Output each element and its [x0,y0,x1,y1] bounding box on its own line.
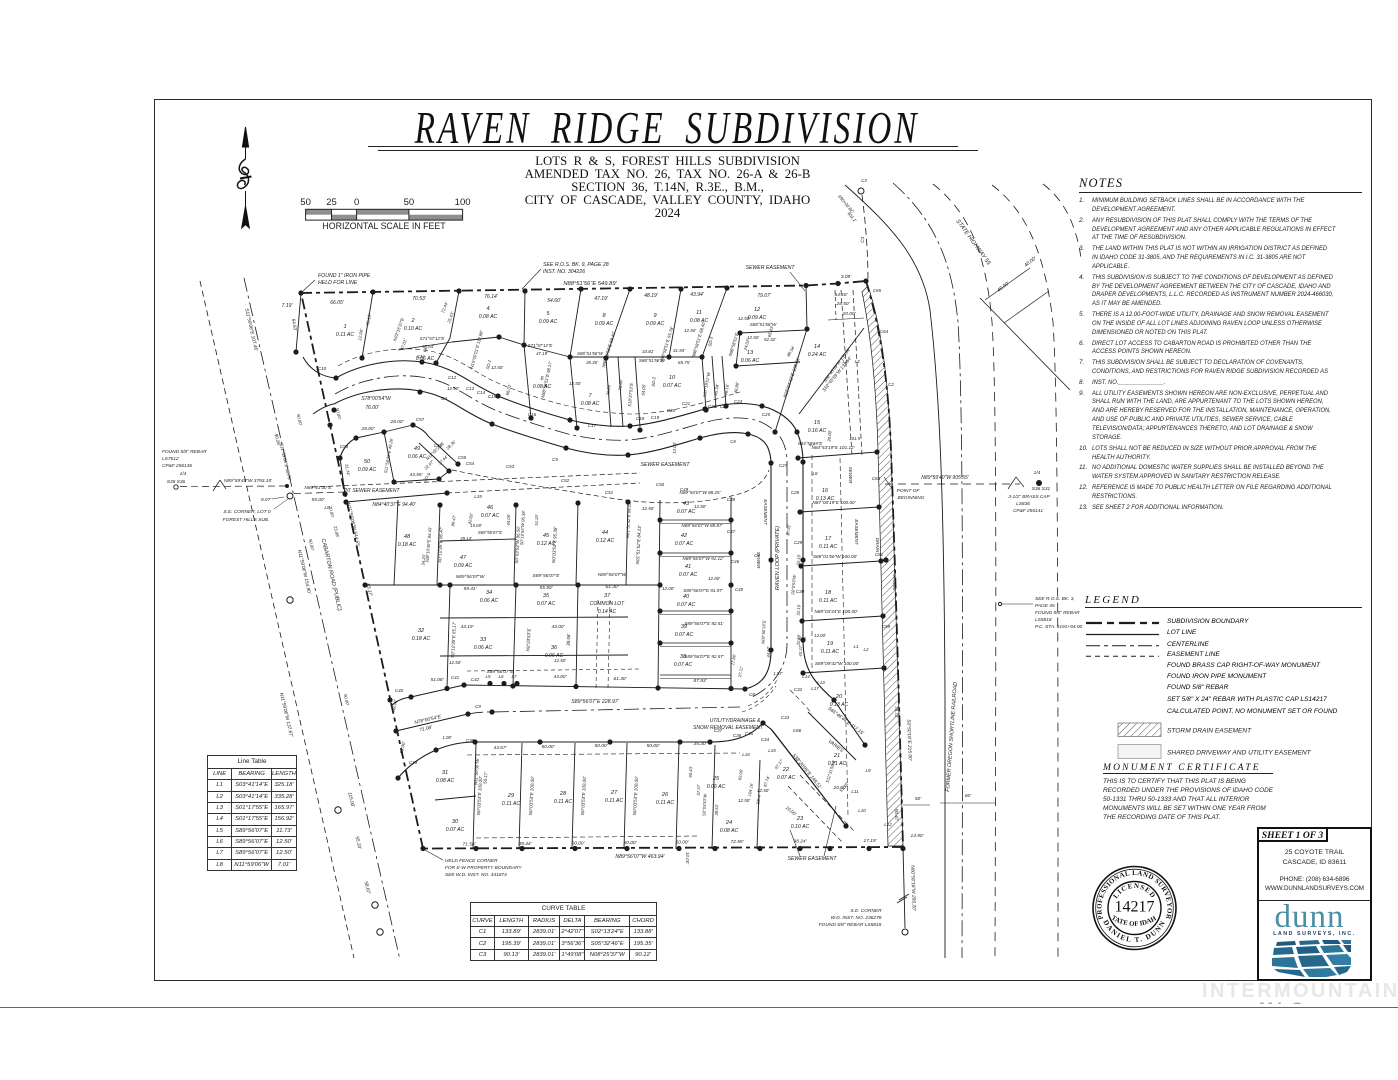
svg-text:601.1': 601.1' [846,211,858,223]
svg-text:C47: C47 [727,529,736,534]
svg-text:0.08 AC: 0.08 AC [436,778,455,784]
svg-text:98.24': 98.24' [794,839,808,845]
svg-text:RAVEN LOOP (PRIVATE): RAVEN LOOP (PRIVATE) [775,526,781,590]
svg-text:0.08 AC: 0.08 AC [720,828,739,834]
svg-text:101.5': 101.5' [849,436,861,441]
svg-text:50': 50' [915,796,922,802]
svg-text:43.67': 43.67' [494,745,508,751]
svg-text:12.50': 12.50' [447,386,459,391]
svg-text:0.18 AC: 0.18 AC [398,542,417,548]
svg-text:0.08 AC: 0.08 AC [479,314,498,320]
svg-text:60.43': 60.43' [688,766,694,778]
svg-text:49: 49 [414,446,420,452]
svg-text:L1: L1 [853,644,859,649]
svg-text:S12°31'59"E: S12°31'59"E [825,759,837,783]
svg-text:BEGINNING: BEGINNING [898,495,925,501]
svg-text:1.57': 1.57' [773,671,782,676]
svg-text:23.08': 23.08' [332,524,340,538]
svg-text:61.30': 61.30' [614,676,628,682]
svg-text:62.00': 62.00' [737,769,744,781]
svg-text:S89°56'07"E 92.51': S89°56'07"E 92.51' [684,621,724,626]
svg-text:0.11 AC: 0.11 AC [502,801,520,807]
svg-text:C29: C29 [794,540,803,545]
svg-text:N89°41'30"E: N89°41'30"E [304,485,332,491]
svg-text:12: 12 [754,307,761,313]
svg-text:0.07 AC: 0.07 AC [677,602,696,608]
svg-text:0.11 AC: 0.11 AC [336,332,354,338]
svg-text:12.50': 12.50' [554,658,566,663]
svg-text:STATE HIGHWAY 55: STATE HIGHWAY 55 [954,219,991,267]
svg-text:N89°56'07"W 91.12': N89°56'07"W 91.12' [683,556,724,561]
svg-text:32.19': 32.19' [796,554,802,566]
svg-text:C12: C12 [448,375,457,380]
svg-text:1: 1 [343,324,346,330]
svg-text:43.00': 43.00' [552,624,566,630]
svg-text:EASEMENT: EASEMENT [854,519,859,545]
svg-text:32.19': 32.19' [796,604,802,616]
svg-text:C46: C46 [731,559,740,564]
svg-text:1/4: 1/4 [1034,470,1041,476]
svg-text:12.00': 12.00' [708,576,720,581]
svg-text:41: 41 [685,564,691,570]
svg-text:2: 2 [410,318,415,324]
svg-text:20.00': 20.00' [826,430,832,443]
svg-text:44.97': 44.97' [766,646,772,658]
svg-text:11: 11 [696,310,702,316]
svg-text:S35 S36: S35 S36 [167,479,186,485]
svg-text:C13: C13 [466,386,475,391]
svg-text:28.00': 28.00' [390,419,405,425]
svg-text:12.50': 12.50' [491,365,503,370]
svg-text:31.74': 31.74' [344,464,351,476]
svg-text:L13: L13 [817,680,825,685]
svg-text:C39: C39 [409,760,418,765]
svg-text:31.94': 31.94' [673,348,685,353]
svg-text:N78°00'54"E: N78°00'54"E [414,714,443,726]
svg-text:59.41': 59.41' [464,586,478,592]
svg-text:C21: C21 [682,401,691,406]
svg-text:37.44': 37.44' [437,454,449,466]
svg-text:C55: C55 [458,455,467,460]
svg-text:C58: C58 [340,444,349,449]
svg-text:S71°57'12"E: S71°57'12"E [420,336,445,341]
svg-text:0.10 AC: 0.10 AC [791,824,810,830]
svg-text:28.36': 28.36' [444,439,456,451]
svg-text:C9: C9 [475,704,481,709]
svg-text:0.11 AC: 0.11 AC [819,544,837,550]
svg-text:3.09': 3.09' [841,274,852,280]
svg-text:N89°03'34"E 100.00': N89°03'34"E 100.00' [814,609,858,614]
svg-text:C53: C53 [506,464,515,469]
svg-text:12.50': 12.50' [694,504,706,509]
svg-text:8: 8 [602,313,606,319]
svg-text:70.53': 70.53' [412,296,427,302]
svg-text:N89°56'07"W 89.87': N89°56'07"W 89.87' [682,523,723,528]
svg-text:43.37': 43.37' [798,645,804,657]
svg-text:S89°09'42"W 100.00': S89°09'42"W 100.00' [815,661,860,666]
svg-text:50.00': 50.00' [572,841,586,847]
svg-text:43.94': 43.94' [690,292,705,298]
svg-text:9.07': 9.07' [261,497,272,503]
svg-text:22: 22 [782,767,790,773]
svg-text:S89°56'07"E: S89°56'07"E [533,573,561,579]
svg-text:C30: C30 [796,589,805,594]
svg-text:C19: C19 [651,415,660,420]
svg-text:20.00': 20.00' [842,311,857,317]
svg-text:S.E. CORNER, LOT 0: S.E. CORNER, LOT 0 [223,509,271,515]
svg-text:64.63': 64.63' [291,318,298,331]
svg-text:43.55': 43.55' [410,472,424,478]
svg-text:N89°56'07"W: N89°56'07"W [598,572,627,578]
svg-text:L11: L11 [851,789,859,794]
svg-text:12.00': 12.00' [814,633,826,638]
svg-text:C64: C64 [880,329,889,334]
svg-text:9: 9 [653,313,656,319]
svg-text:STORM DRAIN EASEMENT: STORM DRAIN EASEMENT [1167,728,1252,735]
svg-text:0.24 AC: 0.24 AC [808,352,827,358]
svg-text:C57: C57 [416,417,425,422]
svg-text:50.00': 50.00' [343,693,351,706]
svg-text:SEWER EASEMENT: SEWER EASEMENT [787,856,837,862]
svg-text:0.09 AC: 0.09 AC [454,563,473,569]
svg-text:C50: C50 [656,482,665,487]
svg-text:50.00': 50.00' [308,538,316,551]
svg-text:0.07 AC: 0.07 AC [675,541,694,547]
svg-text:66.05': 66.05' [330,300,345,306]
svg-text:40.00': 40.00' [1023,255,1038,269]
svg-text:S88°01'56"W 100.00': S88°01'56"W 100.00' [813,554,858,559]
svg-text:C35: C35 [745,731,754,736]
svg-text:C54: C54 [466,461,475,466]
svg-text:22.67': 22.67' [422,459,434,471]
svg-text:C5: C5 [552,457,558,462]
svg-text:88.54': 88.54' [786,345,796,358]
svg-text:0.11 AC: 0.11 AC [656,800,674,806]
svg-text:S38°20'05"E 148.51': S38°20'05"E 148.51' [791,752,824,791]
svg-text:28: 28 [559,791,567,797]
svg-text:C34: C34 [761,737,770,742]
svg-text:26: 26 [661,792,669,798]
svg-text:N84°40'37"E 94.40': N84°40'37"E 94.40' [372,502,416,508]
svg-text:L9: L9 [865,768,871,773]
svg-text:SEWER EASEMENT: SEWER EASEMENT [640,462,690,468]
svg-text:12.50': 12.50' [738,316,750,321]
svg-text:19: 19 [827,641,833,647]
svg-text:CP&F 256136: CP&F 256136 [162,463,192,469]
svg-text:C32: C32 [794,687,803,692]
svg-text:POINT OF: POINT OF [897,488,921,494]
svg-text:17.19': 17.19' [864,838,878,844]
svg-text:45: 45 [543,533,550,539]
svg-text:C2: C2 [888,382,894,387]
svg-text:29: 29 [507,793,514,799]
svg-text:S36 S31: S36 S31 [1032,486,1051,492]
svg-text:LS5818: LS5818 [1035,617,1052,623]
svg-text:L14: L14 [802,674,810,679]
svg-text:SEE R.O.S. BK. 9, PAGE 28: SEE R.O.S. BK. 9, PAGE 28 [543,262,609,268]
svg-text:50.00': 50.00' [595,743,609,749]
svg-text:C37: C37 [714,728,723,733]
svg-text:L6: L6 [498,674,504,679]
svg-text:35.30': 35.30' [694,741,708,747]
svg-text:C16: C16 [528,412,537,417]
svg-text:COMMON LOT: COMMON LOT [590,601,625,607]
svg-text:87.91': 87.91' [786,524,792,536]
svg-text:71.58': 71.58' [463,842,477,848]
svg-text:STORM: STORM [892,574,897,591]
svg-text:CABARTON ROAD (PUBLIC): CABARTON ROAD (PUBLIC) [320,538,343,612]
svg-text:51.20': 51.20' [534,514,540,526]
svg-text:48.19': 48.19' [644,293,659,299]
svg-text:12.00': 12.00' [357,328,364,340]
svg-text:S.E. CORNER: S.E. CORNER [850,908,882,914]
svg-text:0.07 AC: 0.07 AC [674,662,693,668]
svg-text:51.16': 51.16' [838,781,849,793]
svg-text:C52: C52 [561,478,570,483]
svg-text:55.33': 55.33' [354,836,363,851]
svg-text:0.11 AC: 0.11 AC [819,598,837,604]
svg-text:C33: C33 [781,715,790,720]
svg-text:C66: C66 [793,728,802,733]
svg-text:HELD FOR LINE: HELD FOR LINE [318,280,358,286]
svg-text:S78°00'54"W: S78°00'54"W [361,396,392,402]
svg-text:HELD FENCE CORNER: HELD FENCE CORNER [445,858,498,864]
svg-text:50.00': 50.00' [624,840,638,846]
svg-text:66.01': 66.01' [505,383,513,396]
svg-text:S89°56'07"E 91.97': S89°56'07"E 91.97' [683,588,723,593]
svg-text:C48: C48 [727,497,736,502]
svg-text:N00°50'18"E: N00°50'18"E [760,620,766,644]
svg-text:C23: C23 [720,404,729,409]
svg-text:C25: C25 [762,412,771,417]
svg-text:0.07 AC: 0.07 AC [677,509,696,515]
svg-text:3-1/2" BRASS CAP: 3-1/2" BRASS CAP [1008,494,1050,500]
svg-text:C45: C45 [735,587,744,592]
svg-text:FOUND 1" IRON PIPE: FOUND 1" IRON PIPE [318,273,371,279]
svg-text:0.07 AC: 0.07 AC [777,775,796,781]
svg-text:C10: C10 [318,366,327,371]
svg-text:N0°03'53"E 100.00': N0°03'53"E 100.00' [580,776,587,815]
svg-text:5: 5 [546,311,550,317]
svg-text:SNOW REMOVAL EASEMENT: SNOW REMOVAL EASEMENT [693,725,764,731]
svg-text:0.14 AC: 0.14 AC [598,609,617,615]
svg-text:SD-4: SD-4 [755,794,762,805]
svg-text:60': 60' [965,793,972,799]
svg-text:N01°51'52"E 84.23': N01°51'52"E 84.23' [625,502,632,539]
svg-text:N0°03'53"E 100.00': N0°03'53"E 100.00' [528,776,535,815]
svg-text:40: 40 [683,594,690,600]
svg-text:76.14': 76.14' [484,294,499,300]
svg-text:20.00': 20.00' [327,504,335,518]
svg-text:58.67': 58.67' [363,881,372,896]
svg-text:12.00': 12.00' [662,586,674,591]
svg-text:12.50': 12.50' [642,506,654,511]
svg-text:L10: L10 [858,808,866,813]
svg-text:16: 16 [822,488,829,494]
svg-text:50.00': 50.00' [676,840,690,846]
svg-text:C41: C41 [451,675,460,680]
svg-text:FOUND 5/8" REBAR: FOUND 5/8" REBAR [162,449,207,455]
svg-text:LS836: LS836 [1016,501,1030,507]
svg-text:39.44': 39.44' [519,841,533,847]
svg-text:30: 30 [452,819,459,825]
svg-text:C61: C61 [875,552,884,557]
svg-text:S11°59'06"E 107.46': S11°59'06"E 107.46' [243,308,259,353]
svg-text:S0°03'53"W: S0°03'53"W [701,793,707,817]
svg-text:0.11 AC: 0.11 AC [605,798,623,804]
svg-text:0.13 AC: 0.13 AC [830,702,849,708]
svg-text:0.09 AC: 0.09 AC [539,319,558,325]
svg-text:115.00': 115.00' [346,792,356,809]
svg-text:N0°03'53"E 100.00': N0°03'53"E 100.00' [632,776,639,815]
svg-text:0.16 AC: 0.16 AC [808,428,827,434]
svg-text:14217: 14217 [1115,899,1155,916]
svg-text:54.60': 54.60' [547,298,562,304]
svg-text:20' SEWER EASEMENT: 20' SEWER EASEMENT [343,488,400,494]
svg-text:50.00': 50.00' [647,743,661,749]
svg-text:10: 10 [669,375,676,381]
svg-text:12.50': 12.50' [738,798,750,803]
svg-text:L15: L15 [768,748,776,753]
svg-text:49.14': 49.14' [460,536,472,541]
svg-text:N11°59'06"W 154.90': N11°59'06"W 154.90' [296,549,312,595]
svg-text:61.30': 61.30' [606,584,620,590]
svg-text:21: 21 [833,753,840,759]
svg-text:31: 31 [442,770,448,776]
svg-text:S0°50'18"E 215.90': S0°50'18"E 215.90' [905,719,912,761]
svg-text:0.18 AC: 0.18 AC [412,636,431,642]
svg-text:C42: C42 [471,677,480,682]
svg-text:L8: L8 [812,471,818,476]
svg-text:0.09 AC: 0.09 AC [595,321,614,327]
svg-text:0: 0 [354,197,359,208]
svg-text:C18: C18 [636,416,645,421]
svg-text:S18°27'53"E: S18°27'53"E [627,382,634,407]
svg-text:C22: C22 [708,404,717,409]
svg-text:40.00': 40.00' [996,280,1011,294]
svg-text:76.00': 76.00' [365,405,380,411]
svg-text:14.90': 14.90' [911,833,925,839]
svg-text:N88°51'56"E 549.89': N88°51'56"E 549.89' [563,281,617,287]
svg-text:S11°59'06"E 98.76': S11°59'06"E 98.76' [279,442,293,481]
svg-text:C40: C40 [395,688,404,693]
svg-text:FOUND 5/8" REBAR LS5818: FOUND 5/8" REBAR LS5818 [819,922,882,928]
svg-text:L16: L16 [742,752,750,757]
svg-text:FORMER OREGON SHORTLINE RAILRO: FORMER OREGON SHORTLINE RAILROAD [945,682,959,792]
svg-text:48.16': 48.16' [723,383,730,395]
svg-text:15.00': 15.00' [470,523,482,528]
svg-text:0.09 AC: 0.09 AC [358,467,377,473]
svg-text:N88°51'56"E 68.40': N88°51'56"E 68.40' [601,331,617,368]
svg-text:S89°56'07"E: S89°56'07"E [478,530,502,535]
svg-text:LS7612: LS7612 [162,456,179,462]
svg-text:0.12 AC: 0.12 AC [596,538,615,544]
svg-text:0.10 AC: 0.10 AC [404,326,423,332]
svg-text:48: 48 [404,534,411,540]
svg-text:N84°53'19"E: N84°53'19"E [798,441,823,446]
svg-text:55.54': 55.54' [422,344,434,349]
svg-text:0.06 AC: 0.06 AC [707,784,726,790]
svg-text:50: 50 [364,459,371,465]
svg-text:79.07': 79.07' [757,293,772,299]
svg-text:UTILITY/DRAINAGE &: UTILITY/DRAINAGE & [710,718,762,724]
svg-text:70.86': 70.86' [606,384,612,396]
svg-text:14: 14 [814,344,820,350]
svg-text:C63: C63 [872,476,881,481]
svg-text:17: 17 [825,536,832,542]
svg-text:C8: C8 [749,692,755,697]
svg-text:0.06 AC: 0.06 AC [741,358,760,364]
svg-text:N11°59'06"W 137.67': N11°59'06"W 137.67' [278,692,294,738]
svg-text:S89°56'07"E 228.97': S89°56'07"E 228.97' [571,699,619,705]
svg-text:0.08 AC: 0.08 AC [581,401,600,407]
svg-text:C11: C11 [417,354,425,359]
svg-text:C27: C27 [779,463,788,468]
svg-text:L5: L5 [485,674,491,679]
svg-text:71.08': 71.08' [419,724,434,733]
svg-text:50.00': 50.00' [335,407,343,420]
svg-text:7.19': 7.19' [282,303,294,309]
svg-text:33.81': 33.81' [642,349,654,354]
svg-text:DRAIN: DRAIN [875,538,880,553]
svg-text:C7: C7 [754,553,760,558]
svg-text:32.19': 32.19' [796,634,802,646]
svg-text:38.53': 38.53' [714,804,720,816]
svg-text:SD-2: SD-2 [651,376,657,387]
svg-text:12.50': 12.50' [569,381,581,386]
svg-text:C59: C59 [882,624,891,629]
svg-text:N89°56'07"W 463.94': N89°56'07"W 463.94' [615,854,665,860]
svg-text:0.11 AC: 0.11 AC [821,649,839,655]
svg-text:25: 25 [712,776,720,782]
svg-text:N15°00'21"E 112.86': N15°00'21"E 112.86' [469,330,484,369]
svg-text:47.19': 47.19' [594,296,609,302]
svg-text:43: 43 [683,501,690,507]
svg-text:50: 50 [300,197,311,208]
svg-text:0.07 AC: 0.07 AC [675,632,694,638]
svg-text:47: 47 [460,555,467,561]
svg-text:C49: C49 [680,487,689,492]
svg-text:44: 44 [602,530,608,536]
svg-text:47.19': 47.19' [536,351,548,356]
svg-text:50.00': 50.00' [542,744,556,750]
svg-text:4: 4 [486,306,489,312]
svg-text:HORIZONTAL SCALE IN FEET: HORIZONTAL SCALE IN FEET [322,221,446,231]
svg-text:W.D. INST. NO. 236278: W.D. INST. NO. 236278 [831,915,882,921]
svg-text:S0°10'39"E 65.17': S0°10'39"E 65.17' [450,622,457,658]
svg-text:25: 25 [326,197,337,208]
svg-text:55.00': 55.00' [312,497,326,503]
svg-text:27: 27 [610,790,618,796]
svg-text:C20: C20 [667,408,676,413]
svg-text:0.07 AC: 0.07 AC [537,601,556,607]
svg-text:32: 32 [418,628,425,634]
svg-text:L2: L2 [863,647,869,652]
svg-text:43.00': 43.00' [554,674,568,680]
svg-text:C17: C17 [588,423,597,428]
svg-text:72.44': 72.44' [440,301,449,314]
svg-text:L19: L19 [474,494,482,499]
svg-text:7: 7 [588,393,592,399]
svg-text:24: 24 [725,820,732,826]
svg-text:0.06 AC: 0.06 AC [474,645,493,651]
svg-text:87.93': 87.93' [694,678,708,684]
svg-text:SD-3: SD-3 [707,336,714,347]
svg-text:S0°10'39"E 96.47': S0°10'39"E 96.47' [437,527,444,563]
svg-text:C6: C6 [730,439,736,444]
svg-text:N89°59'40"W 905.55': N89°59'40"W 905.55' [921,475,969,481]
svg-text:0.09 AC: 0.09 AC [748,315,767,321]
